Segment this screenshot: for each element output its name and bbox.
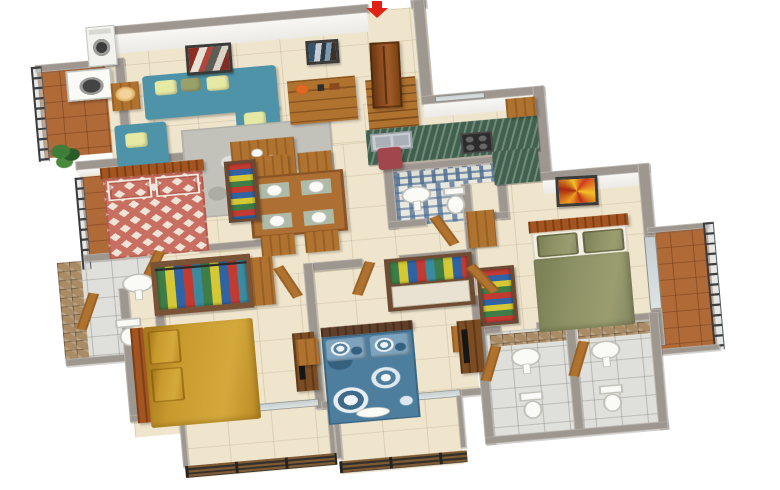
washer-control-panel: [89, 28, 111, 35]
burner-3: [466, 144, 474, 151]
sink-basin-1: [375, 136, 391, 148]
washing-machine: [65, 67, 114, 102]
dining-chair-4: [304, 230, 340, 253]
commonbath-sink-pedestal: [413, 200, 422, 211]
bed1-pillow-1: [107, 178, 153, 202]
bed1-pillow-2: [155, 174, 201, 198]
bed2-wardrobe: [150, 254, 254, 317]
bed3-pillow-1: [326, 337, 368, 362]
art-canvas: [308, 42, 336, 62]
corridor-cupboard: [466, 209, 497, 248]
floor-plan-render: [0, 0, 780, 490]
art-canvas: [188, 46, 230, 73]
decor-items: [317, 83, 339, 91]
bed3-wardrobe: [384, 252, 476, 312]
bed3-pillow-2: [369, 333, 411, 358]
kitchen-counter-right: [492, 148, 541, 186]
washer-door-glass: [92, 38, 110, 56]
bathroom3-sink-pedestal: [602, 356, 611, 367]
burner-4: [479, 143, 487, 150]
living-room-wall-art: [185, 42, 233, 75]
bathroom2-sink-pedestal: [522, 363, 531, 374]
bed3-wardrobe-doors: [391, 280, 471, 308]
master-pillow-2: [582, 228, 625, 253]
art-canvas: [558, 178, 595, 204]
dining-chair-3: [260, 233, 296, 256]
bed3-nightstand-1: [295, 338, 319, 366]
potted-plant: [49, 141, 81, 170]
arrow-stem: [372, 1, 382, 8]
gas-stove: [460, 131, 494, 154]
master-pillow-1: [536, 232, 579, 257]
console-sideboard: [287, 76, 359, 126]
burner-2: [478, 135, 486, 142]
bed2-side-cabinet: [250, 256, 276, 306]
master-tv-screen: [461, 329, 470, 363]
decor-plate: [295, 84, 309, 95]
bed1-wardrobe-clothes: [228, 162, 257, 219]
console-wall-art: [305, 39, 340, 65]
sofa-pillow-3: [206, 75, 229, 91]
burner-1: [465, 136, 473, 143]
washing-machine-front: [85, 25, 117, 67]
bed1-wardrobe: [224, 159, 261, 223]
red-stool: [377, 146, 403, 170]
bathroom1-sink-pedestal: [134, 289, 143, 300]
washing-machine-door: [79, 76, 104, 96]
master-duvet: [533, 251, 635, 332]
bed2-pillow-1: [147, 329, 182, 365]
entrance-door: [369, 41, 402, 108]
sink-basin-2: [393, 135, 409, 147]
master-tv-unit: [456, 319, 484, 374]
arrow-head: [366, 8, 388, 18]
master-bedroom-wall-art: [555, 175, 599, 207]
sofa-pillow-2: [180, 77, 201, 92]
bed2-pillow-2: [150, 367, 185, 403]
door-panel-line: [382, 46, 387, 104]
armchair-pillow: [125, 132, 148, 148]
dining-table: [247, 169, 348, 239]
entrance-arrow-icon: [366, 1, 388, 18]
sofa-pillow-1: [154, 79, 177, 95]
kitchen-upper-cabinet: [505, 96, 537, 118]
